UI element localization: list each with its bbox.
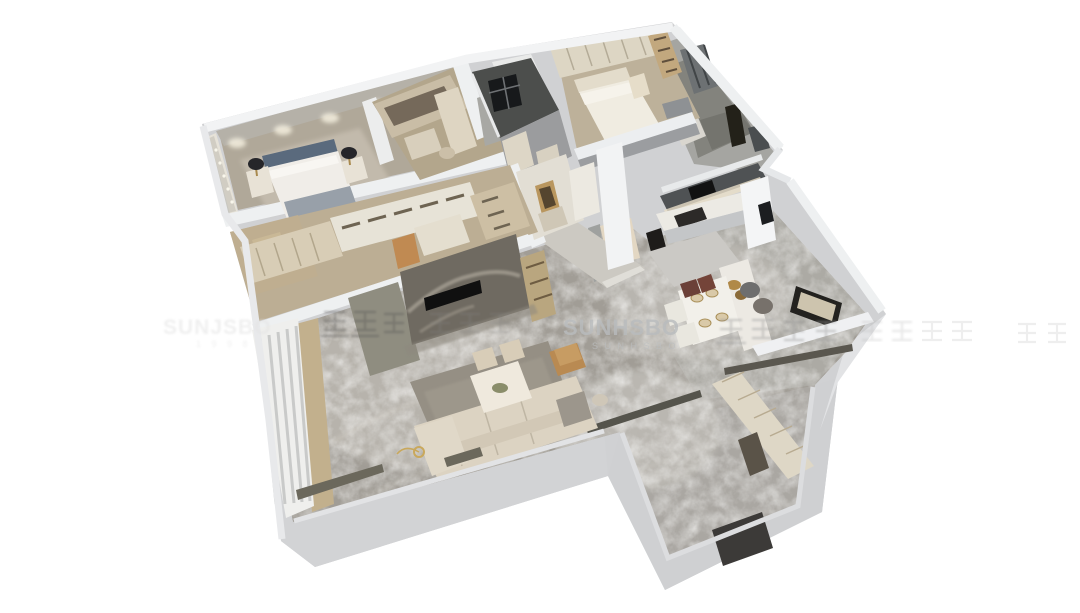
svg-text:1 9 9 8: 1 9 9 8 xyxy=(196,339,252,349)
svg-text:SUNJSBO: SUNJSBO xyxy=(163,316,272,339)
svg-text:SUNHSBO: SUNHSBO xyxy=(563,315,680,340)
svg-text:S U N H S B O: S U N H S B O xyxy=(592,341,678,351)
